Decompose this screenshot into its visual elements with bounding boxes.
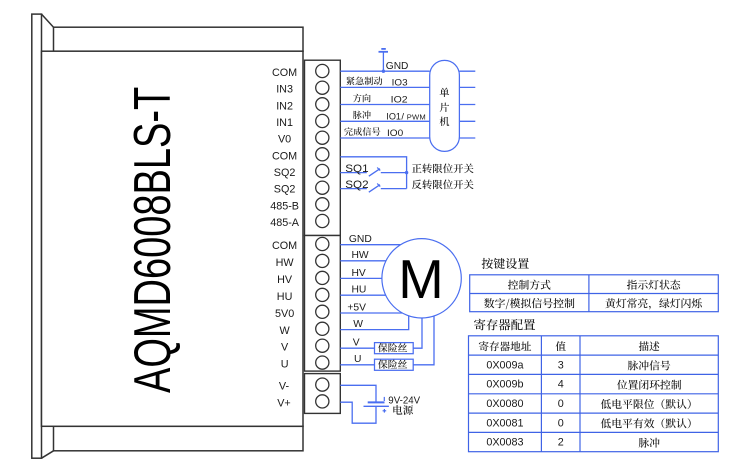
svg-text:2: 2 <box>558 437 564 449</box>
svg-text:0X0080: 0X0080 <box>486 398 523 410</box>
svg-text:+5V: +5V <box>347 302 366 313</box>
svg-text:W: W <box>353 319 363 330</box>
svg-text:485-A: 485-A <box>270 217 300 229</box>
svg-text:IO0: IO0 <box>387 128 403 139</box>
svg-text:3: 3 <box>558 359 564 371</box>
svg-text:SQ2: SQ2 <box>274 167 296 179</box>
svg-text:IO3: IO3 <box>392 78 408 89</box>
svg-text:0X009a: 0X009a <box>486 359 523 371</box>
svg-text:U: U <box>354 354 361 365</box>
svg-text:HU: HU <box>277 291 293 303</box>
svg-text:PWM: PWM <box>407 112 426 121</box>
svg-text:0X0081: 0X0081 <box>486 417 523 429</box>
svg-text:4: 4 <box>558 379 564 391</box>
svg-text:0: 0 <box>558 398 564 410</box>
svg-text:0X009b: 0X009b <box>486 379 523 391</box>
svg-text:IO2: IO2 <box>391 95 408 106</box>
svg-text:W: W <box>279 325 290 337</box>
svg-text:IN1: IN1 <box>276 117 293 129</box>
svg-text:9V-24V: 9V-24V <box>388 395 420 406</box>
svg-text:GND: GND <box>386 61 409 72</box>
svg-text:V-: V- <box>279 381 290 393</box>
svg-text:V: V <box>281 342 289 354</box>
svg-text:HV: HV <box>277 274 293 286</box>
svg-text:COM: COM <box>272 240 297 252</box>
svg-text:U: U <box>281 359 289 371</box>
svg-text:/: / <box>401 112 404 123</box>
svg-text:V: V <box>353 338 360 349</box>
svg-text:COM: COM <box>272 150 297 162</box>
svg-text:V0: V0 <box>278 134 291 146</box>
svg-text:AQMD6008BLS-T: AQMD6008BLS-T <box>123 87 181 393</box>
svg-text:SQ2: SQ2 <box>274 184 296 196</box>
svg-text:GND: GND <box>349 234 372 245</box>
svg-text:5V0: 5V0 <box>275 308 294 320</box>
svg-text:V+: V+ <box>277 397 291 409</box>
svg-text:HW: HW <box>276 257 295 269</box>
svg-text:0: 0 <box>558 417 564 429</box>
svg-text:SQ1: SQ1 <box>345 163 368 175</box>
svg-text:M: M <box>398 248 444 310</box>
svg-text:485-B: 485-B <box>270 200 299 212</box>
svg-text:COM: COM <box>272 67 297 79</box>
svg-text:IN2: IN2 <box>276 100 293 112</box>
svg-text:0X0083: 0X0083 <box>486 437 523 449</box>
svg-text:HV: HV <box>352 268 366 279</box>
svg-text:IO1: IO1 <box>386 112 401 123</box>
svg-text:IN3: IN3 <box>276 84 293 96</box>
svg-text:HW: HW <box>352 250 369 261</box>
svg-text:HU: HU <box>352 285 367 296</box>
svg-text:SQ2: SQ2 <box>345 179 368 191</box>
